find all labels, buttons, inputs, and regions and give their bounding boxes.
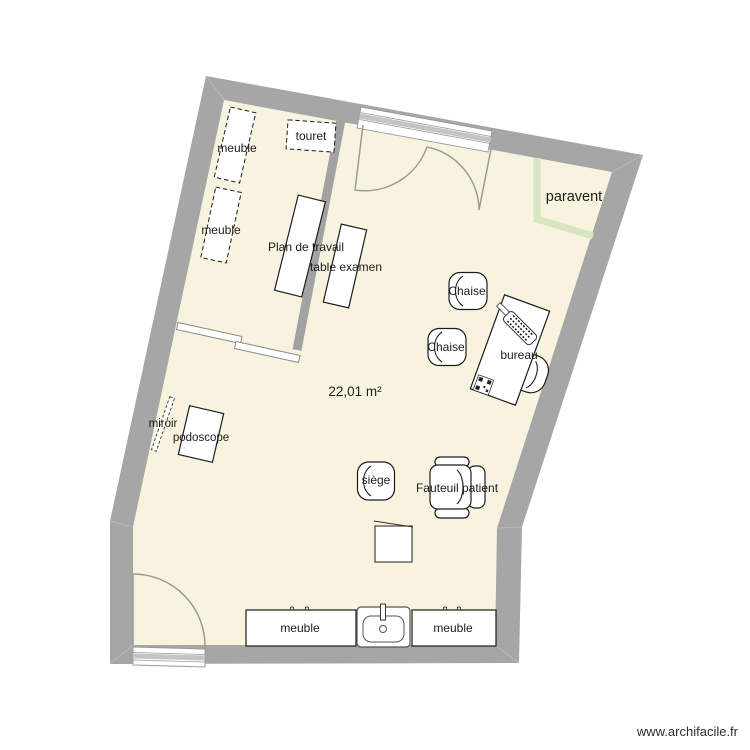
label-fauteuil-patient: Fauteuil patient	[416, 481, 499, 495]
watermark: www.archifacile.fr	[636, 724, 739, 739]
label-paravent: paravent	[546, 189, 602, 205]
faucet-icon	[381, 604, 386, 620]
label-miroir: miroir	[149, 418, 178, 430]
label-chaise-2: Chaise	[427, 340, 465, 354]
label-meuble-1: meuble	[217, 141, 257, 155]
label-bureau: bureau	[500, 348, 537, 362]
label-siege: siège	[362, 473, 391, 487]
label-meuble-2: meuble	[201, 223, 241, 237]
label-meuble-bottom-right: meuble	[433, 621, 473, 635]
floorplan-canvas: meuble meuble touret Plan de travail tab…	[0, 0, 750, 750]
furniture-sink[interactable]	[357, 604, 410, 647]
furniture-box[interactable]	[374, 521, 413, 562]
room-area-label: 22,01 m²	[328, 384, 382, 399]
label-touret: touret	[296, 129, 327, 143]
label-podoscope: podoscope	[173, 432, 229, 444]
floorplan-svg: meuble meuble touret Plan de travail tab…	[0, 0, 750, 750]
label-plan-de-travail: Plan de travail	[268, 240, 344, 254]
window-stripe	[133, 656, 205, 658]
label-meuble-bottom-left: meuble	[280, 621, 320, 635]
label-table-examen: table examen	[310, 260, 382, 274]
label-chaise-1: Chaise	[448, 284, 486, 298]
